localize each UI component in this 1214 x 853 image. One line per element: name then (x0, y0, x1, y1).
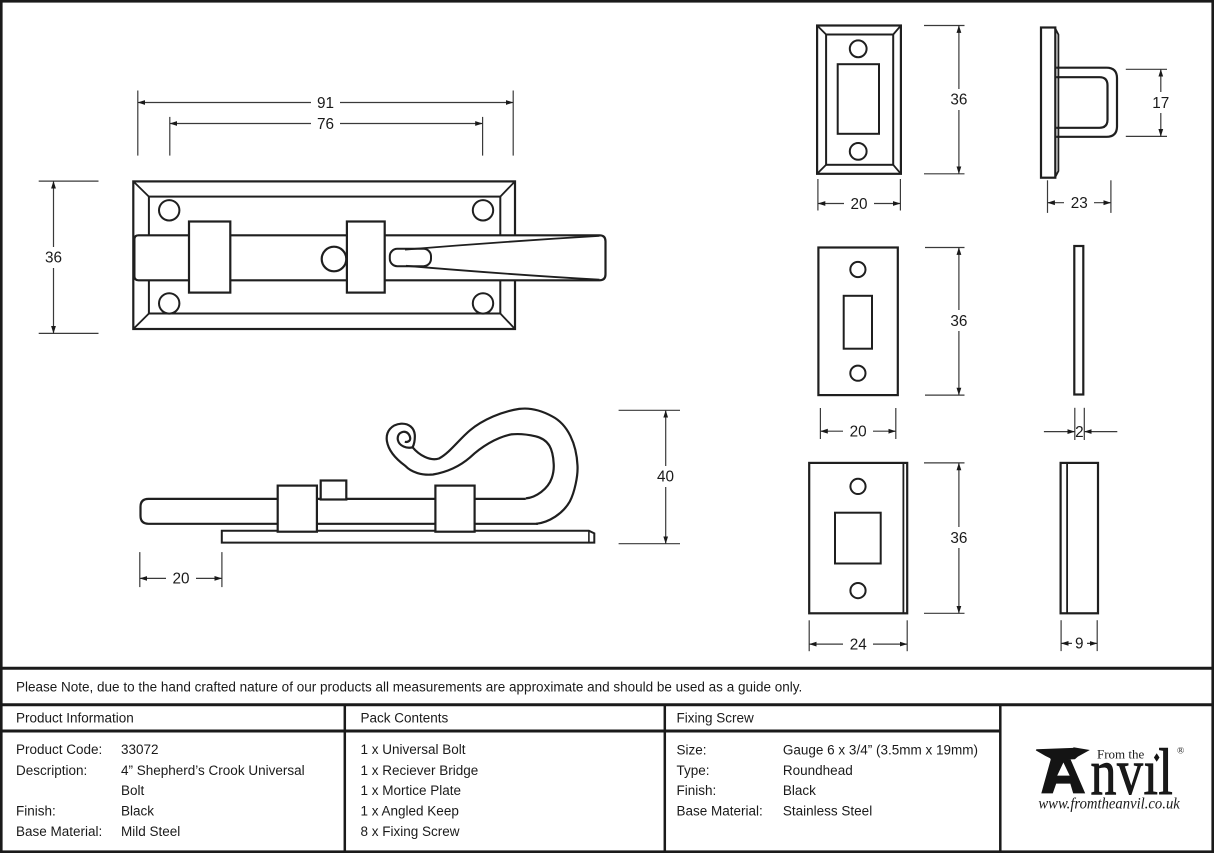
svg-text:Gauge 6 x 3/4” (3.5mm x 19mm): Gauge 6 x 3/4” (3.5mm x 19mm) (783, 743, 978, 758)
svg-text:40: 40 (657, 469, 674, 486)
svg-text:Please Note, due to the hand c: Please Note, due to the hand crafted nat… (16, 680, 802, 695)
svg-text:Product Information: Product Information (16, 711, 134, 726)
svg-text:Base Material:: Base Material: (16, 824, 102, 839)
svg-text:Base Material:: Base Material: (677, 803, 763, 818)
svg-text:91: 91 (317, 95, 334, 112)
svg-text:8 x Fixing Screw: 8 x Fixing Screw (361, 824, 460, 839)
svg-text:Bolt: Bolt (121, 783, 145, 798)
svg-text:Size:: Size: (677, 743, 707, 758)
svg-text:23: 23 (1071, 195, 1088, 212)
svg-text:Type:: Type: (677, 763, 710, 778)
svg-text:33072: 33072 (121, 742, 159, 757)
svg-text:36: 36 (950, 92, 967, 109)
svg-text:1 x Universal Bolt: 1 x Universal Bolt (361, 742, 466, 757)
svg-text:www.fromtheanvil.co.uk: www.fromtheanvil.co.uk (1038, 796, 1180, 813)
svg-text:24: 24 (850, 636, 868, 653)
svg-text:Product Code:: Product Code: (16, 742, 102, 757)
svg-text:Finish:: Finish: (677, 783, 717, 798)
svg-text:Stainless Steel: Stainless Steel (783, 803, 872, 818)
svg-text:20: 20 (172, 571, 189, 588)
svg-text:1 x Reciever Bridge: 1 x Reciever Bridge (361, 763, 479, 778)
svg-text:4” Shepherd’s Crook Universal: 4” Shepherd’s Crook Universal (121, 763, 305, 778)
svg-text:36: 36 (950, 313, 967, 330)
svg-text:36: 36 (950, 530, 967, 547)
svg-text:2: 2 (1075, 424, 1084, 441)
svg-text:17: 17 (1152, 95, 1169, 112)
svg-text:1 x Angled Keep: 1 x Angled Keep (361, 803, 459, 818)
svg-text:Black: Black (783, 783, 816, 798)
svg-text:From the: From the (1097, 746, 1145, 761)
svg-text:36: 36 (45, 250, 62, 267)
svg-text:Black: Black (121, 803, 154, 818)
svg-text:76: 76 (317, 116, 334, 133)
svg-text:1 x Mortice Plate: 1 x Mortice Plate (361, 783, 462, 798)
svg-text:®: ® (1177, 746, 1184, 757)
svg-text:Pack Contents: Pack Contents (361, 711, 449, 726)
svg-text:Description:: Description: (16, 763, 87, 778)
svg-text:20: 20 (850, 196, 867, 213)
svg-text:Fixing Screw: Fixing Screw (677, 711, 755, 726)
svg-text:Roundhead: Roundhead (783, 763, 853, 778)
svg-text:20: 20 (850, 424, 867, 441)
svg-text:Mild Steel: Mild Steel (121, 824, 180, 839)
svg-text:9: 9 (1075, 636, 1084, 653)
svg-text:Finish:: Finish: (16, 803, 56, 818)
